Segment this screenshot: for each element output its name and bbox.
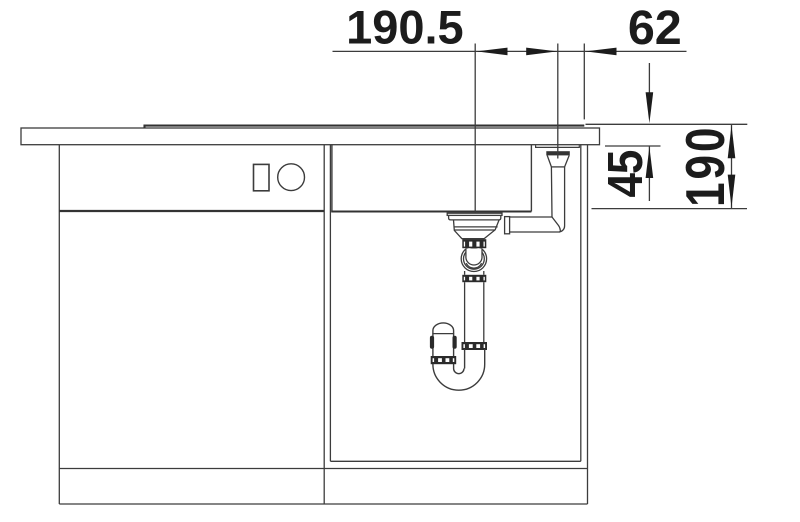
svg-text:190.5: 190.5 [346, 1, 464, 54]
svg-text:190: 190 [674, 124, 736, 206]
svg-text:45: 45 [597, 151, 652, 198]
svg-text:62: 62 [628, 1, 682, 55]
